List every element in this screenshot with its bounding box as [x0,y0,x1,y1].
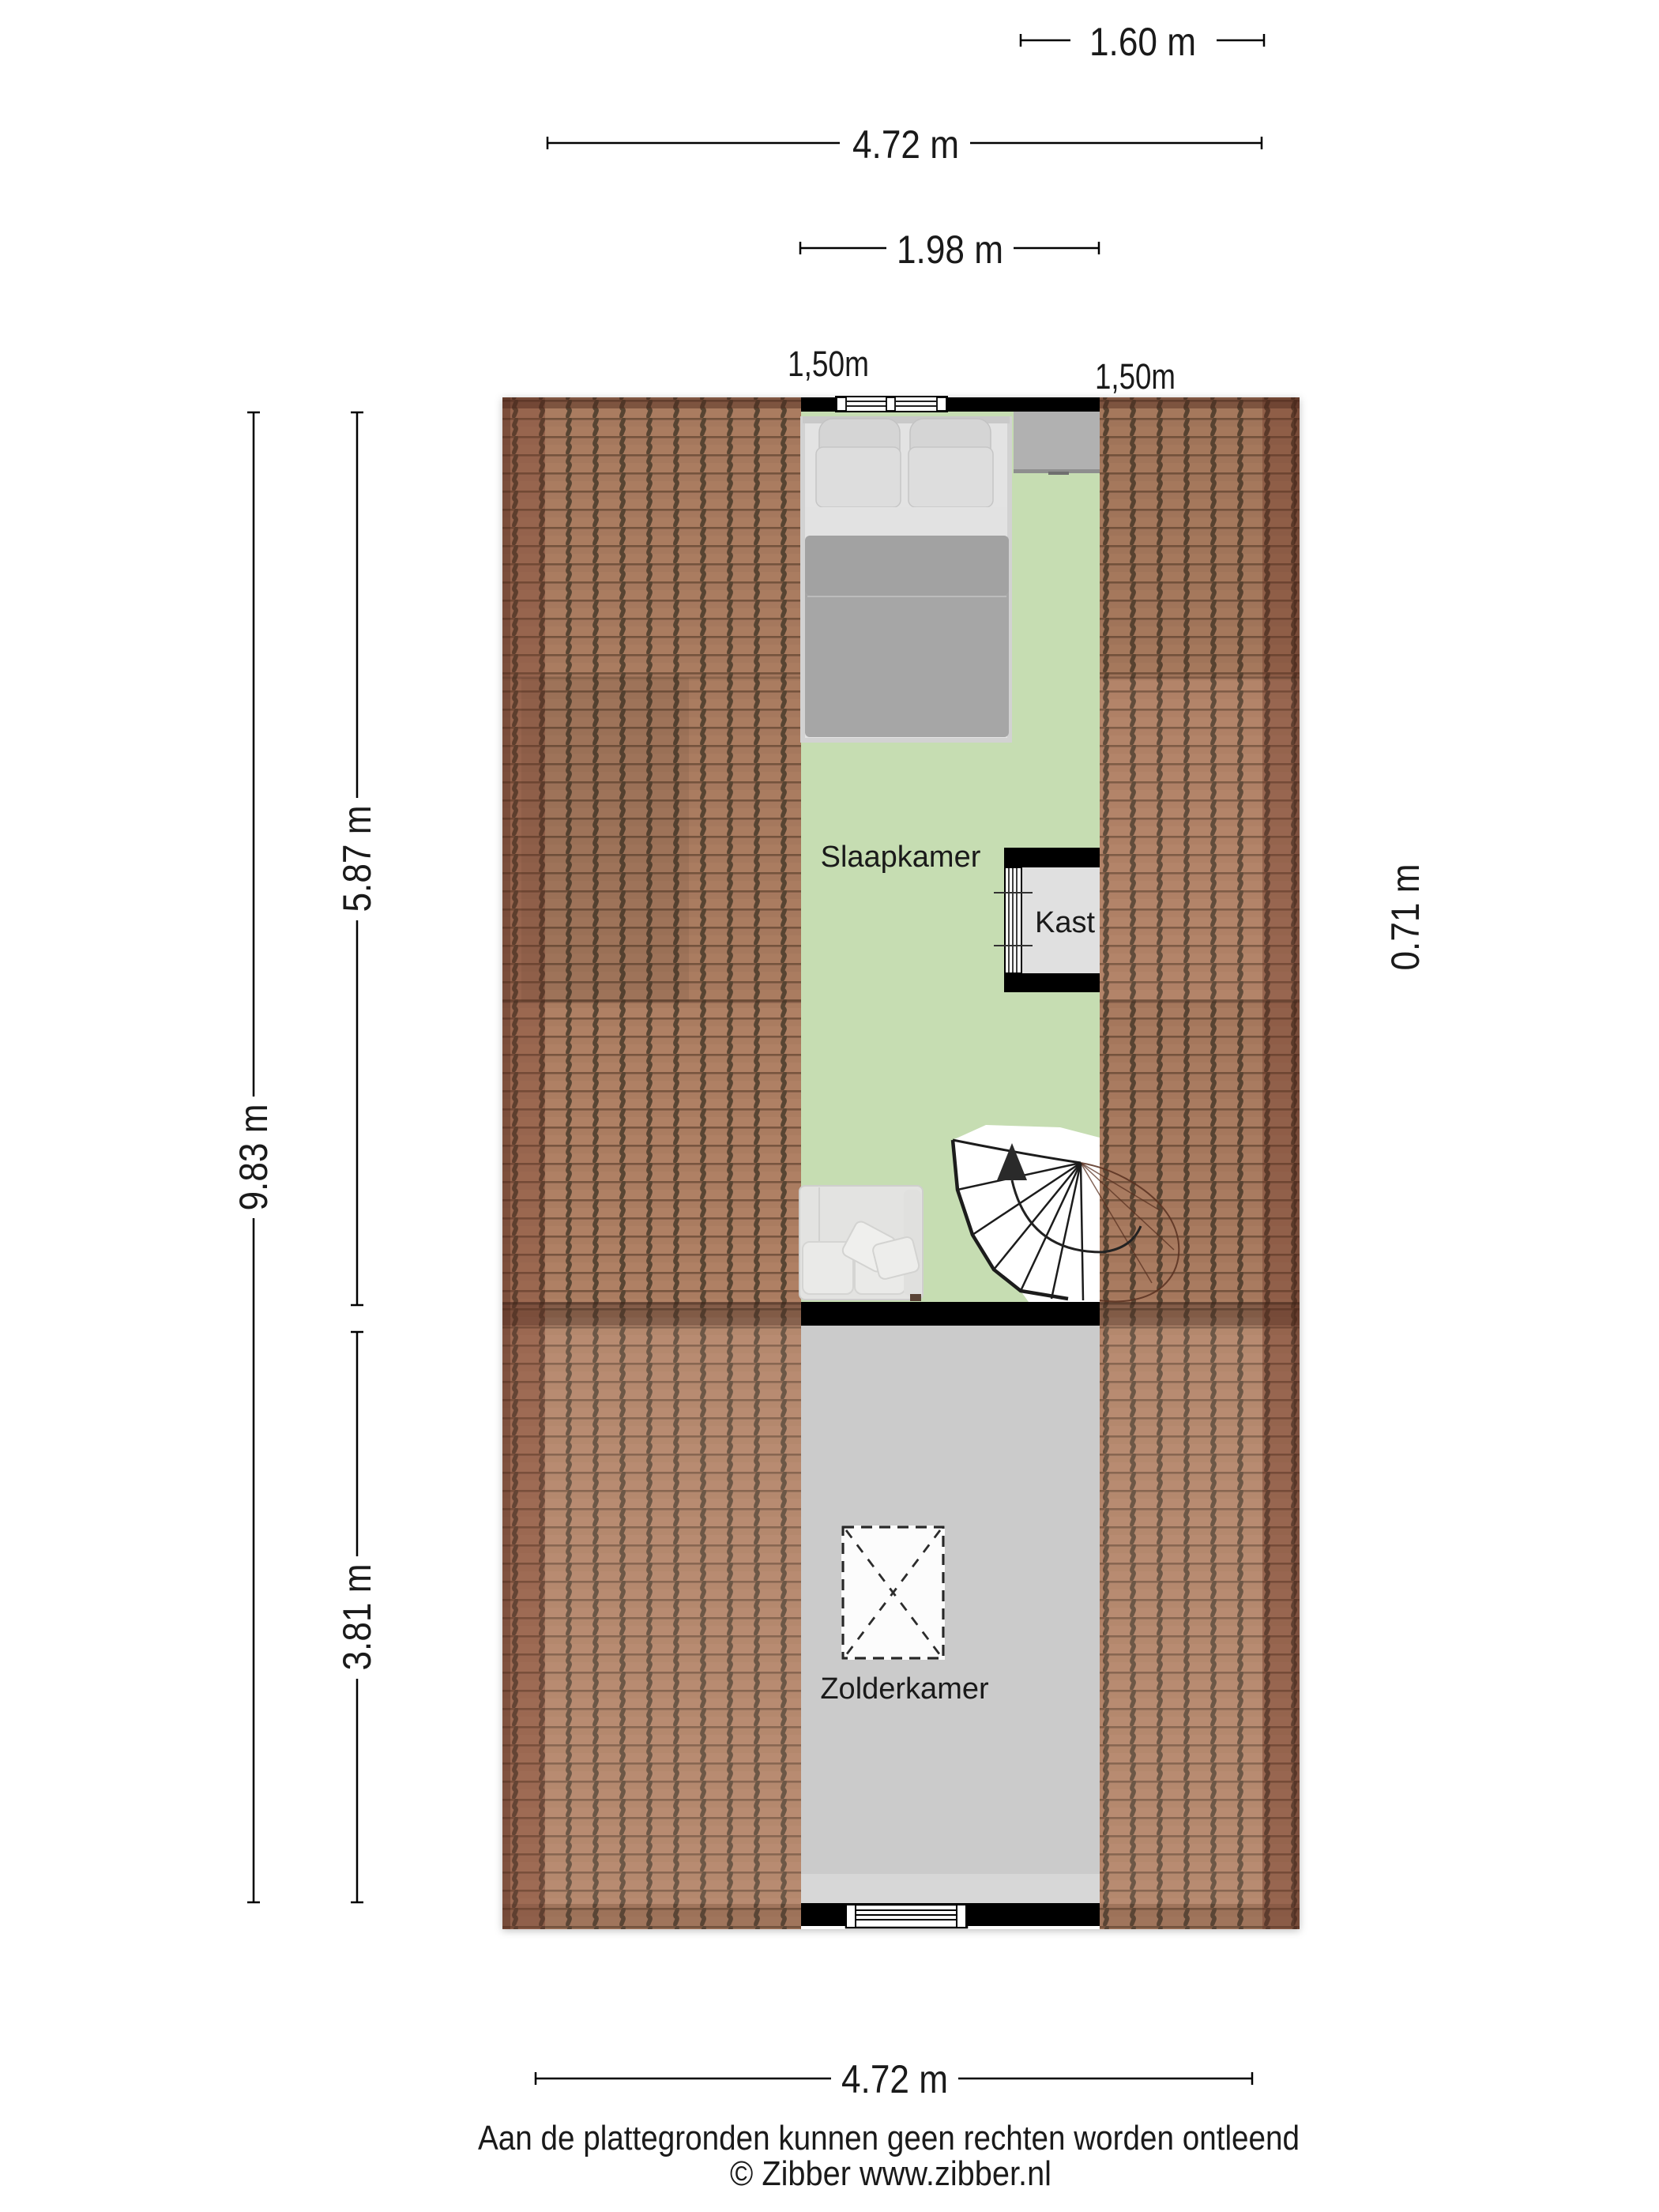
svg-text:Aan de plattegronden kunnen ge: Aan de plattegronden kunnen geen rechten… [478,2119,1300,2157]
svg-text:1.60 m: 1.60 m [1089,20,1196,64]
svg-text:1,50m: 1,50m [788,344,869,384]
svg-text:0.71 m: 0.71 m [1383,864,1428,971]
svg-text:9.83 m: 9.83 m [231,1104,276,1211]
svg-text:4.72 m: 4.72 m [841,2057,948,2101]
svg-text:Kast: Kast [1035,906,1095,939]
svg-text:1.98 m: 1.98 m [897,228,1003,272]
svg-text:Zolderkamer: Zolderkamer [820,1672,989,1706]
svg-text:3.81 m: 3.81 m [335,1564,379,1671]
svg-text:4.72 m: 4.72 m [852,122,959,167]
svg-text:5.87 m: 5.87 m [335,806,379,912]
svg-text:1,50m: 1,50m [1095,356,1176,397]
svg-text:Slaapkamer: Slaapkamer [821,841,981,874]
svg-text:© Zibber www.zibber.nl: © Zibber www.zibber.nl [730,2154,1051,2193]
